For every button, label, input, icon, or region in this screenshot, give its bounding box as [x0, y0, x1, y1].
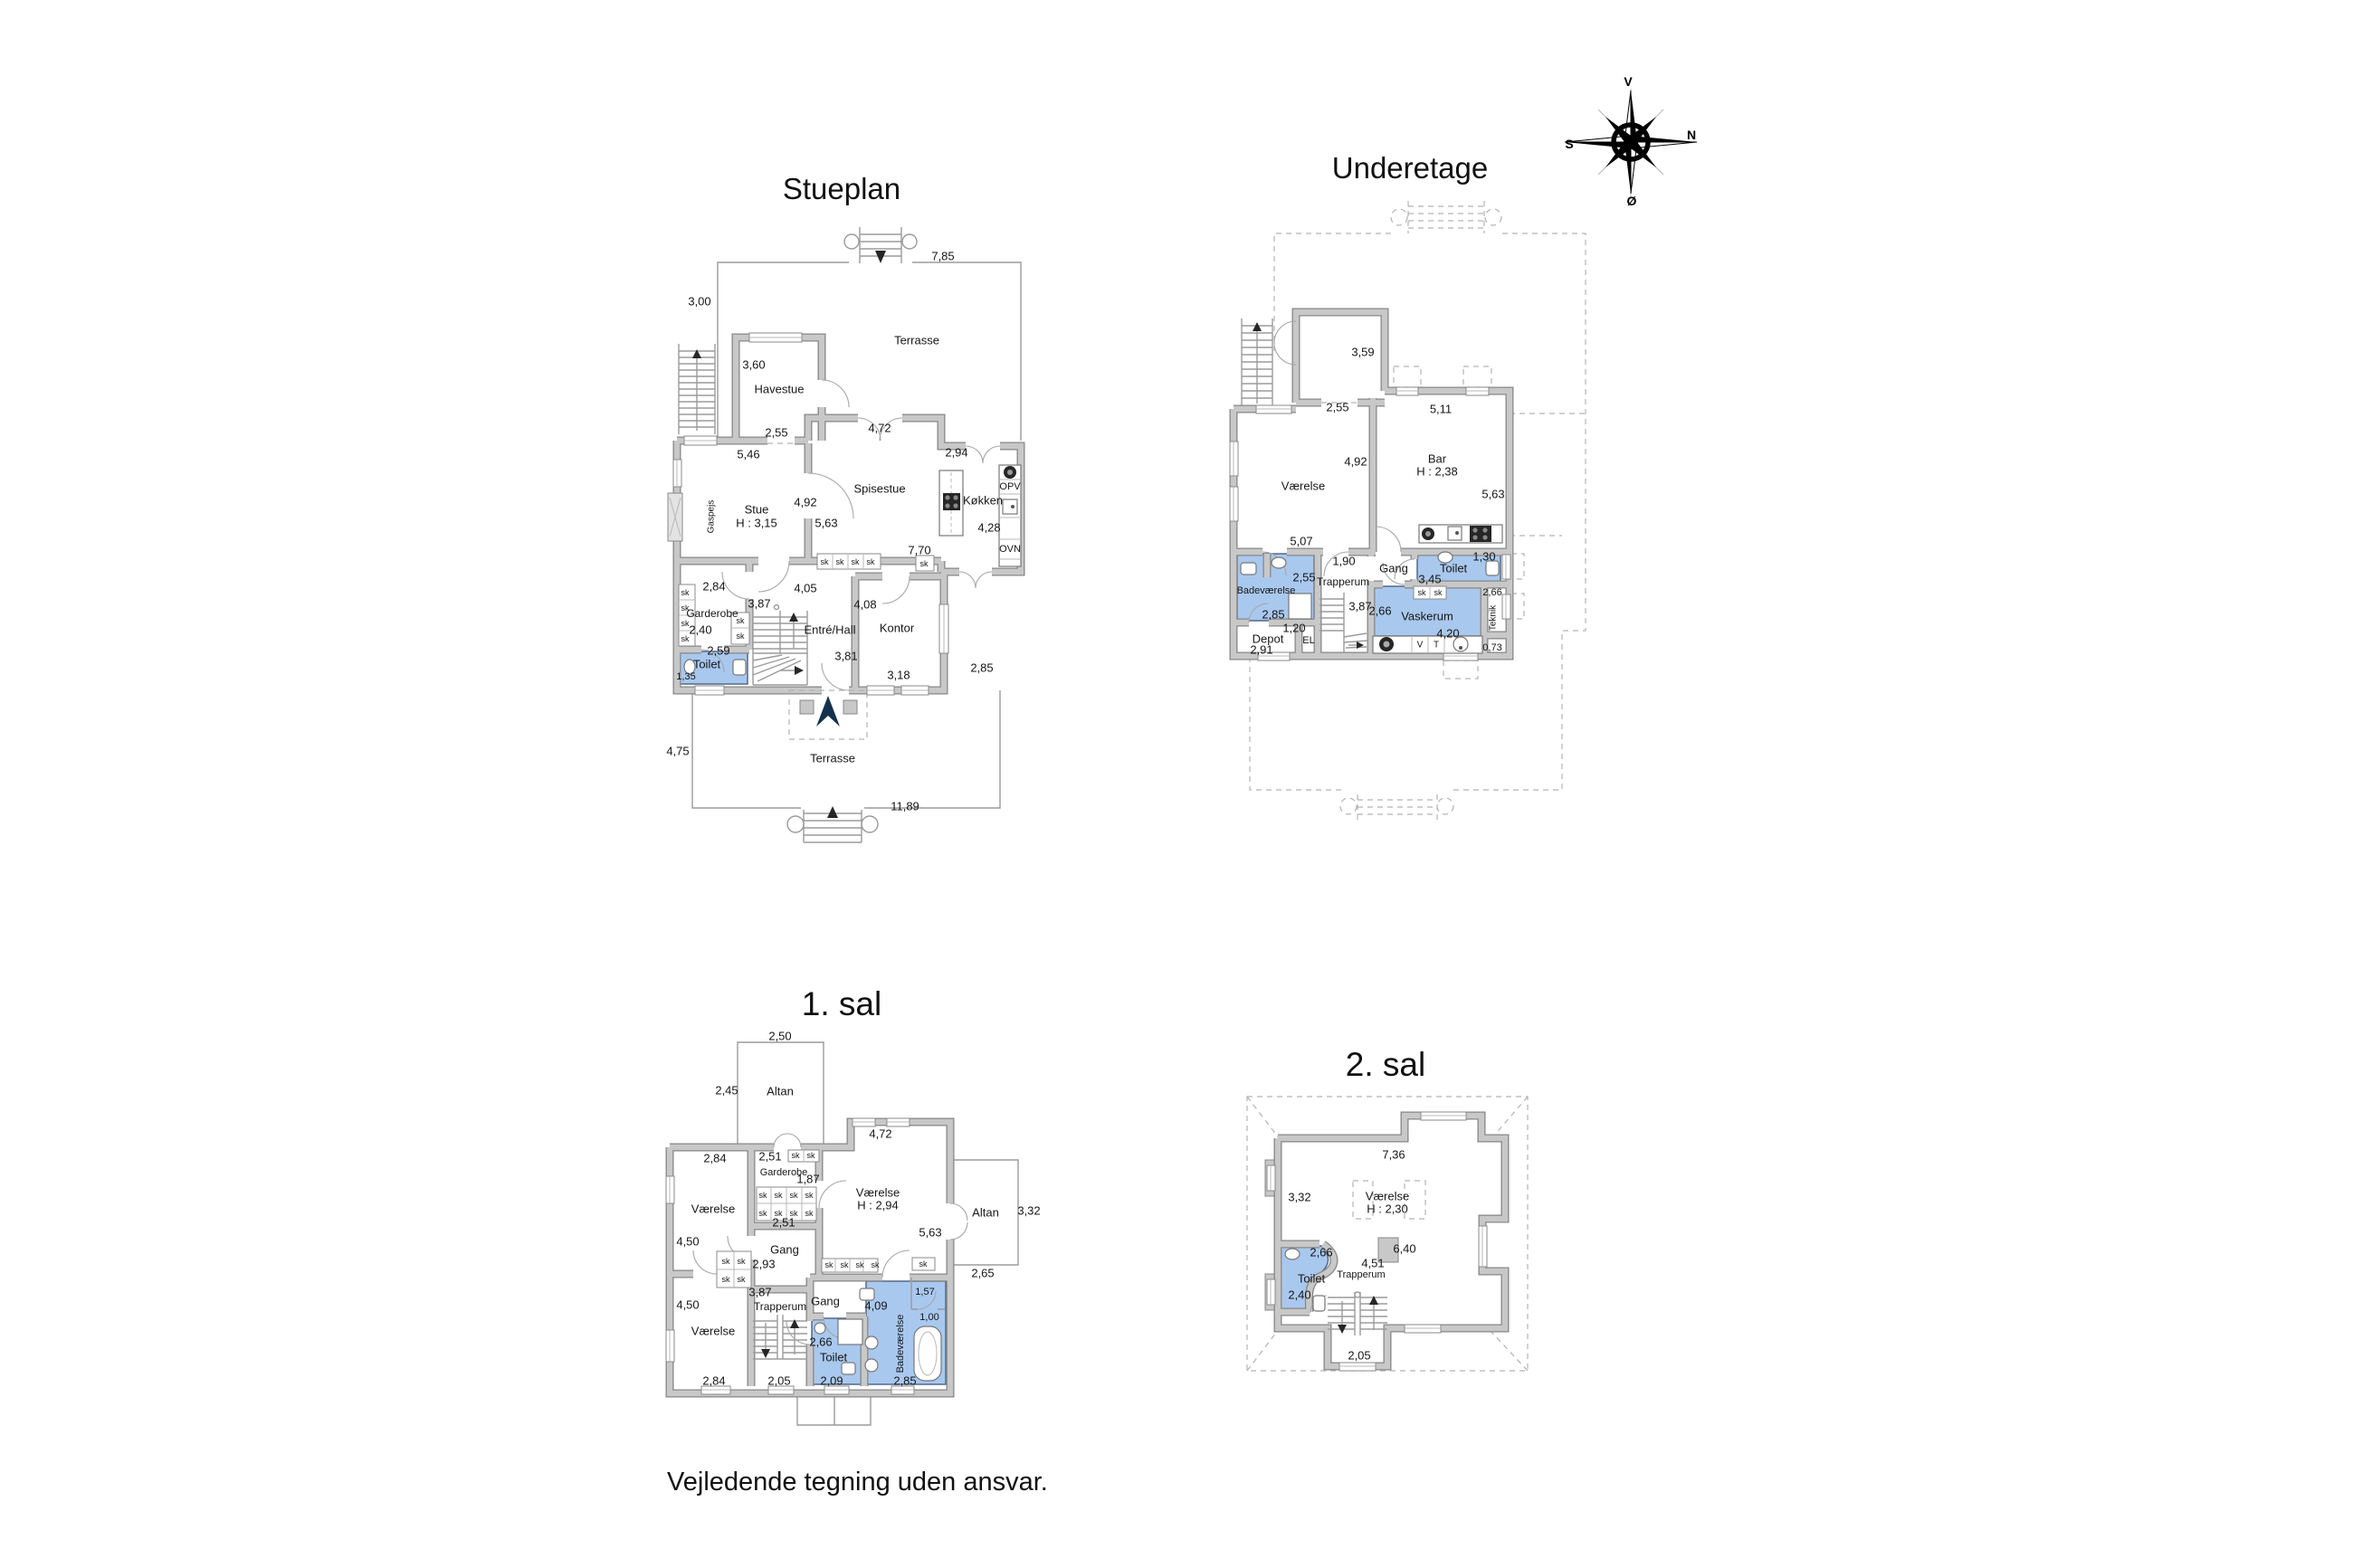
plan-label: Garderobe — [686, 607, 738, 620]
plan-label: sk — [872, 1260, 880, 1269]
plan-label: 3,60 — [742, 358, 765, 372]
plan-label: sk — [841, 1260, 849, 1269]
plan-label: 1,35 — [676, 671, 695, 682]
plan-label: 2,05 — [1348, 1349, 1370, 1363]
plan-label: 2,09 — [820, 1374, 843, 1388]
plan-label: sk — [759, 1209, 767, 1218]
plan-label: 1,90 — [1332, 555, 1355, 568]
plan-label: Terrasse — [810, 752, 855, 765]
plan-label: Kontor — [880, 622, 914, 635]
plan-label: 3,59 — [1351, 346, 1374, 359]
plan-label: Toilet — [820, 1351, 847, 1364]
plan-label: 1,20 — [1282, 622, 1305, 635]
plan-label: 2,84 — [703, 1152, 726, 1165]
plan-label: Gang — [811, 1295, 840, 1308]
plan-label: sk — [790, 1191, 798, 1200]
plan-label: T — [1434, 641, 1439, 651]
plan-label: 4,72 — [869, 1127, 891, 1141]
plan-label: 4,50 — [676, 1298, 699, 1312]
plan-label: 4,08 — [853, 598, 876, 612]
plan-label: 5,63 — [814, 517, 837, 530]
plan-label: Trapperum — [754, 1300, 806, 1313]
plan-label: 4,75 — [666, 745, 689, 758]
plan-label: 2,55 — [765, 426, 787, 440]
plan-label: sk — [738, 1275, 746, 1284]
plan-label: Toilet — [1440, 562, 1467, 575]
plan-label: Toilet — [693, 658, 720, 671]
plan-label: 7,85 — [931, 250, 954, 263]
plan-label: 2,94 — [945, 446, 967, 460]
plan-label: Spisestue — [853, 482, 905, 496]
plan-label: Trapperum — [1317, 575, 1369, 588]
plan-label: sk — [852, 557, 860, 566]
plan-label: 2,45 — [715, 1084, 738, 1098]
plan-label: 3,45 — [1418, 573, 1441, 586]
plan-label: Altan — [972, 1206, 999, 1220]
plan-label: 2,65 — [971, 1267, 994, 1280]
plan-label: 2,85 — [893, 1374, 916, 1388]
plan-label: Badeværelse — [895, 1315, 906, 1373]
plan-label: H : 3,15 — [736, 517, 777, 530]
plan-label: Entré/Hall — [804, 623, 855, 637]
plan-label: sk — [722, 1257, 730, 1266]
plan-label: 6,40 — [1393, 1242, 1415, 1256]
plan-label: 1,00 — [919, 1312, 938, 1323]
plan-label: Trapperum — [1337, 1269, 1385, 1280]
plan-label: sk — [738, 1257, 746, 1266]
plan-label: 2,85 — [1262, 608, 1284, 622]
plan-label: Gang — [1379, 562, 1408, 575]
plan-label: 2,55 — [1292, 571, 1315, 584]
plan-label: 2,85 — [970, 661, 993, 675]
plan-label: Værelse — [1366, 1190, 1409, 1203]
plan-label: sk — [737, 632, 745, 641]
plan-label: 0,73 — [1482, 642, 1501, 653]
plan-label: 1,30 — [1472, 550, 1495, 564]
plan-label: 2,40 — [1288, 1288, 1310, 1302]
plan-label: Vaskerum — [1401, 610, 1453, 623]
compass-label-s: S — [1565, 137, 1573, 151]
plan-label: sk — [805, 1191, 814, 1200]
plan-label: 2,40 — [689, 623, 711, 637]
compass-label-n: N — [1687, 128, 1696, 142]
plan-label: 2,55 — [1326, 401, 1348, 414]
plan-label: 2,66 — [1310, 1246, 1332, 1259]
plan-label: 4,51 — [1361, 1257, 1384, 1270]
plan-label: Badeværelse — [1237, 585, 1296, 596]
plan-label: Værelse — [691, 1202, 735, 1216]
sal1-title: 1. sal — [802, 985, 881, 1023]
plan-label: 4,28 — [977, 521, 1000, 535]
plan-label: Terrasse — [894, 334, 939, 347]
plan-label: sk — [681, 603, 690, 613]
plan-label: sk — [681, 634, 690, 643]
plan-label: 2,66 — [1368, 604, 1391, 618]
plan-label: sk — [775, 1191, 783, 1200]
plan-label: sk — [759, 1191, 767, 1200]
disclaimer-text: Vejledende tegning uden ansvar. — [667, 1468, 1048, 1497]
plan-label: sk — [1418, 588, 1426, 597]
plan-label: 4,72 — [868, 422, 891, 435]
plan-label: Teknik — [1489, 605, 1499, 631]
plan-label: H : 2,30 — [1367, 1202, 1408, 1216]
plan-label: 2,66 — [1482, 587, 1501, 598]
plan-label: sk — [856, 1260, 864, 1269]
plan-label: EL — [1302, 635, 1314, 646]
plan-label: sk — [920, 559, 929, 568]
plan-label: 3,32 — [1288, 1191, 1310, 1204]
plan-label: sk — [825, 1260, 834, 1269]
plan-label: Køkken — [963, 494, 1003, 508]
plan-label: 4,92 — [1344, 455, 1367, 469]
plan-label: 3,81 — [834, 650, 857, 663]
plan-label: 2,59 — [707, 644, 729, 658]
plan-label: 5,63 — [919, 1226, 941, 1240]
plan-label: sk — [805, 1209, 814, 1218]
plan-label: sk — [1434, 588, 1443, 597]
plan-label: 1,57 — [915, 1287, 934, 1297]
plan-label: V — [1417, 641, 1424, 651]
plan-label: sk — [792, 1151, 800, 1160]
stueplan-title: Stueplan — [783, 172, 900, 206]
plan-label: 7,70 — [908, 544, 930, 557]
plan-label: sk — [722, 1275, 730, 1284]
plan-label: 2,50 — [768, 1030, 791, 1043]
plan-label: sk — [790, 1209, 798, 1218]
plan-label: sk — [821, 557, 829, 566]
plan-label: 2,51 — [758, 1150, 781, 1164]
plan-label: Gaspejs — [707, 500, 717, 534]
plan-label: sk — [681, 588, 690, 597]
plan-label: Toilet — [1298, 1272, 1325, 1286]
plan-label: 4,50 — [676, 1235, 699, 1249]
plan-label: 3,87 — [748, 597, 770, 611]
compass-label-v: V — [1624, 74, 1632, 89]
plan-label: Havestue — [755, 383, 805, 396]
plan-label: 5,07 — [1290, 535, 1312, 548]
plan-label: 2,66 — [809, 1335, 832, 1349]
plan-label: OVN — [999, 544, 1021, 555]
plan-label: OPV — [999, 481, 1020, 492]
plan-label: sk — [807, 1151, 815, 1160]
plan-label: 2,05 — [767, 1374, 790, 1388]
plan-label: H : 2,38 — [1416, 465, 1458, 479]
plan-label: 2,84 — [702, 1374, 725, 1388]
plan-label: Stue — [745, 503, 769, 517]
sal2-title: 2. sal — [1346, 1046, 1425, 1084]
plan-label: 4,20 — [1436, 627, 1459, 641]
plan-label: Altan — [767, 1085, 794, 1098]
plan-label: 1,87 — [796, 1173, 819, 1186]
plan-label: 3,32 — [1017, 1204, 1040, 1218]
plan-label: H : 2,94 — [857, 1199, 899, 1212]
plan-label: 3,00 — [688, 295, 710, 309]
plan-label: 4,09 — [864, 1299, 887, 1313]
plan-label: 2,93 — [752, 1258, 775, 1271]
floorplan-sheet: Stueplan Underetage 1. sal 2. sal V N S … — [0, 0, 2353, 1568]
plan-label: sk — [867, 557, 875, 566]
plan-label: 5,46 — [737, 448, 759, 461]
compass-label-o: Ø — [1627, 194, 1637, 208]
plan-label: 4,05 — [794, 582, 816, 595]
plan-label: 5,63 — [1481, 488, 1504, 501]
plan-label: 4,92 — [794, 496, 816, 509]
plan-label: 11,89 — [891, 800, 919, 813]
plan-label: sk — [737, 616, 745, 625]
underetage-title: Underetage — [1332, 151, 1488, 185]
plan-label: 3,87 — [748, 1286, 771, 1299]
plan-label: Bar — [1428, 452, 1446, 466]
plan-label: sk — [836, 557, 844, 566]
plan-label: 5,11 — [1430, 403, 1452, 416]
labels-layer: Stueplan Underetage 1. sal 2. sal V N S … — [0, 0, 2353, 1568]
plan-label: Gang — [770, 1243, 799, 1257]
plan-label: Værelse — [856, 1186, 900, 1200]
plan-label: Værelse — [1281, 480, 1325, 493]
plan-label: sk — [775, 1209, 783, 1218]
plan-label: Værelse — [691, 1325, 735, 1338]
plan-label: 2,84 — [702, 580, 725, 594]
plan-label: 3,18 — [887, 669, 910, 682]
plan-label: 7,36 — [1382, 1148, 1405, 1162]
plan-label: sk — [681, 619, 690, 628]
plan-label: 2,91 — [1250, 643, 1272, 657]
plan-label: sk — [919, 1259, 928, 1269]
